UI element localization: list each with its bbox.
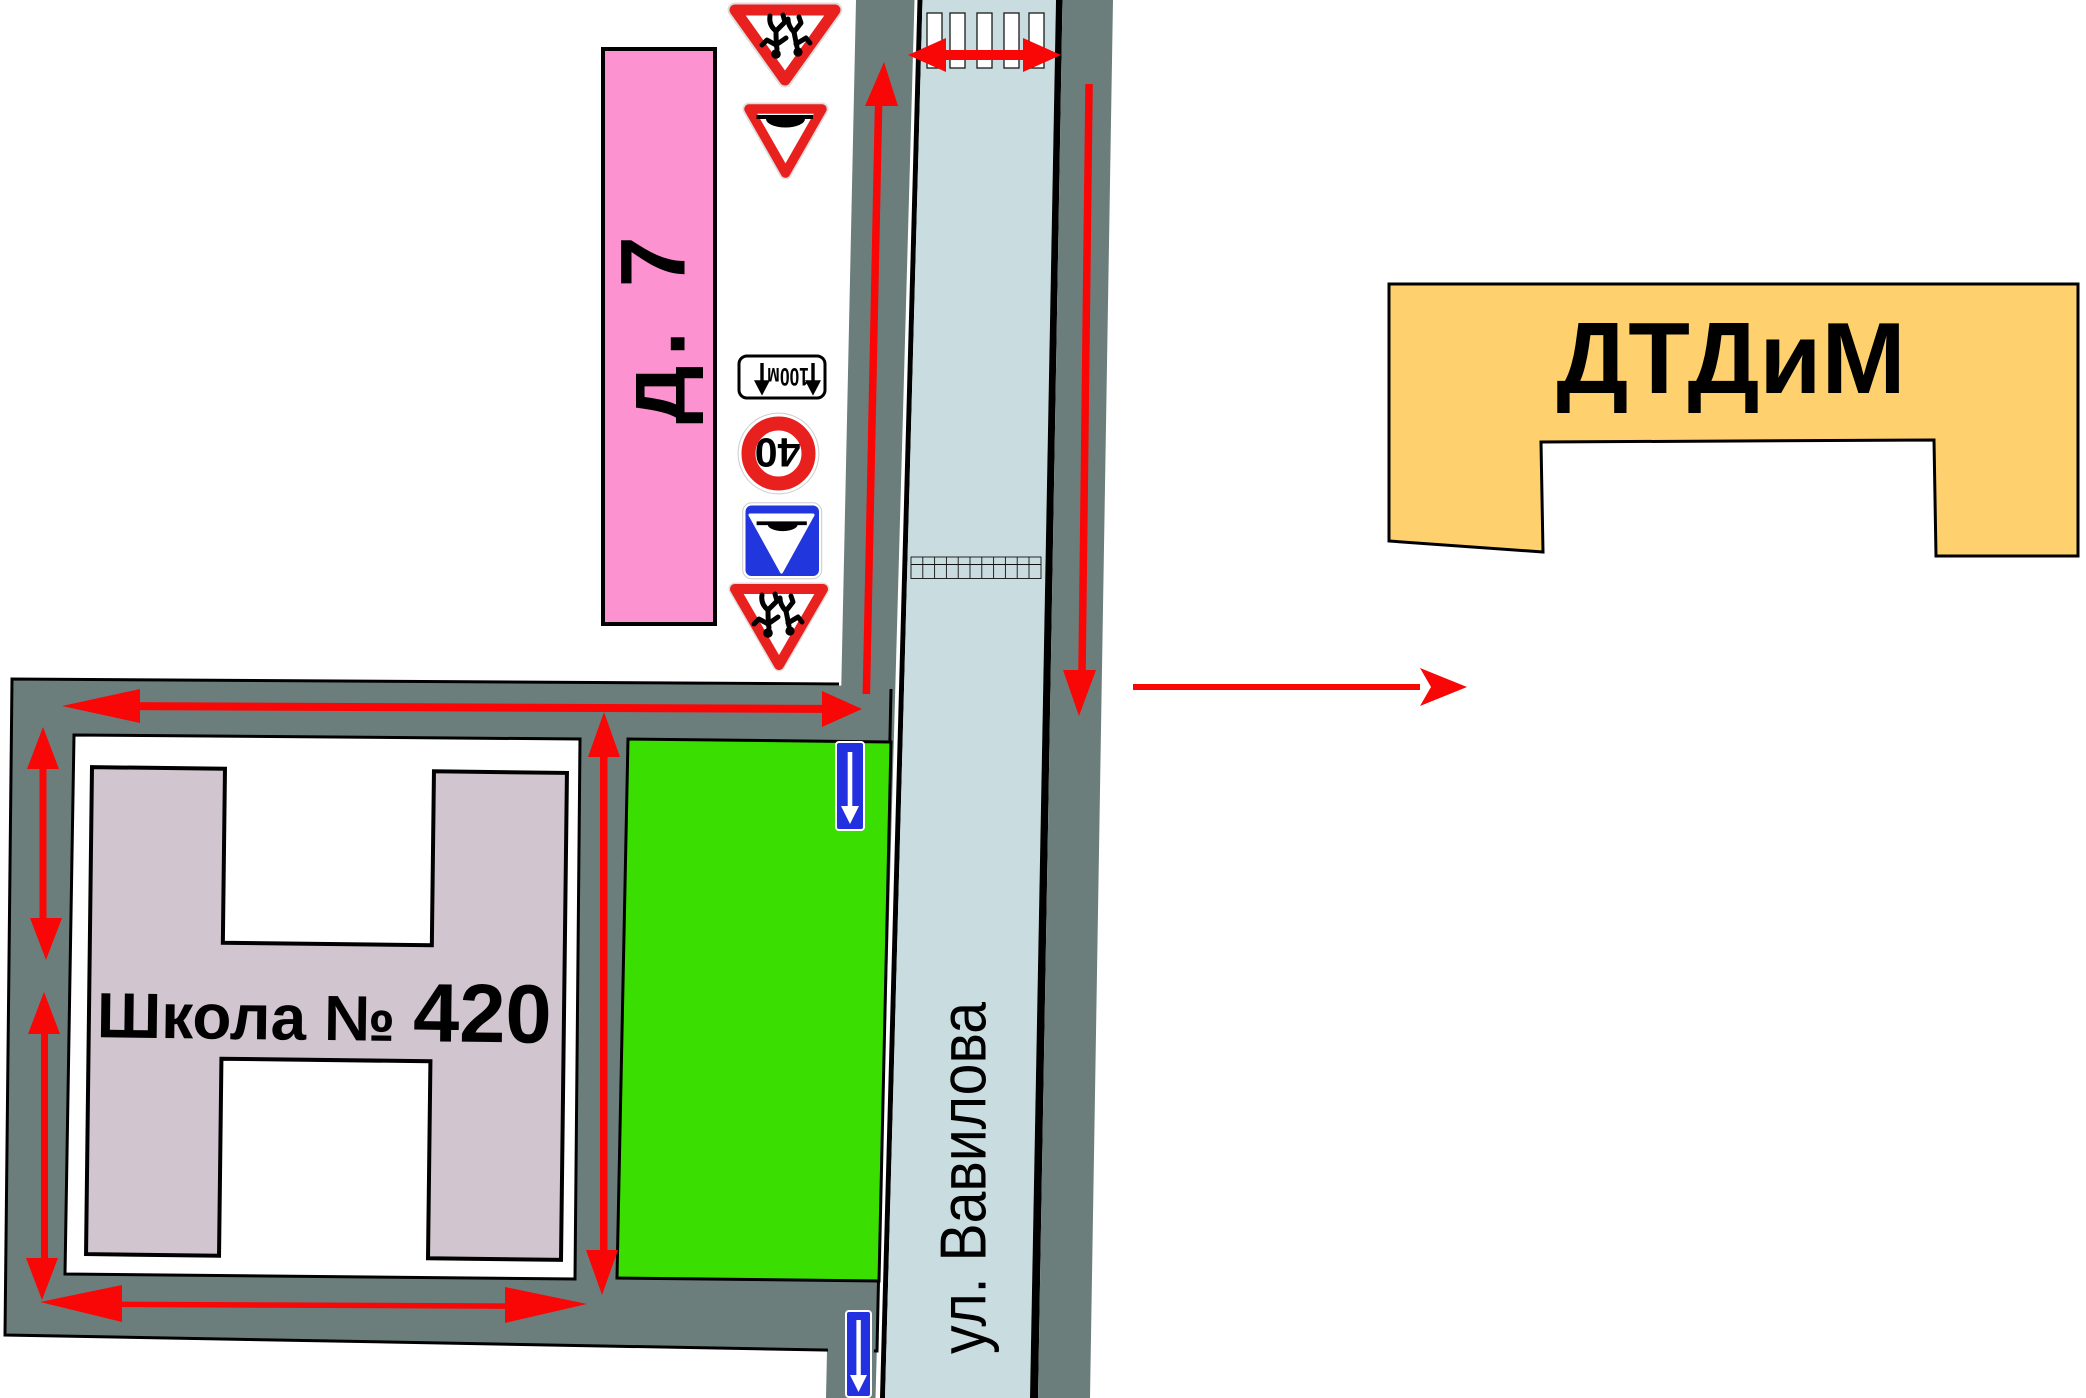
- svg-text:40: 40: [755, 430, 801, 476]
- svg-text:ДТДиМ: ДТДиМ: [1556, 303, 1905, 415]
- svg-text:100м: 100м: [767, 362, 809, 390]
- svg-text:д. 7: д. 7: [603, 227, 705, 424]
- svg-text:ул. Вавилова: ул. Вавилова: [927, 1001, 1000, 1354]
